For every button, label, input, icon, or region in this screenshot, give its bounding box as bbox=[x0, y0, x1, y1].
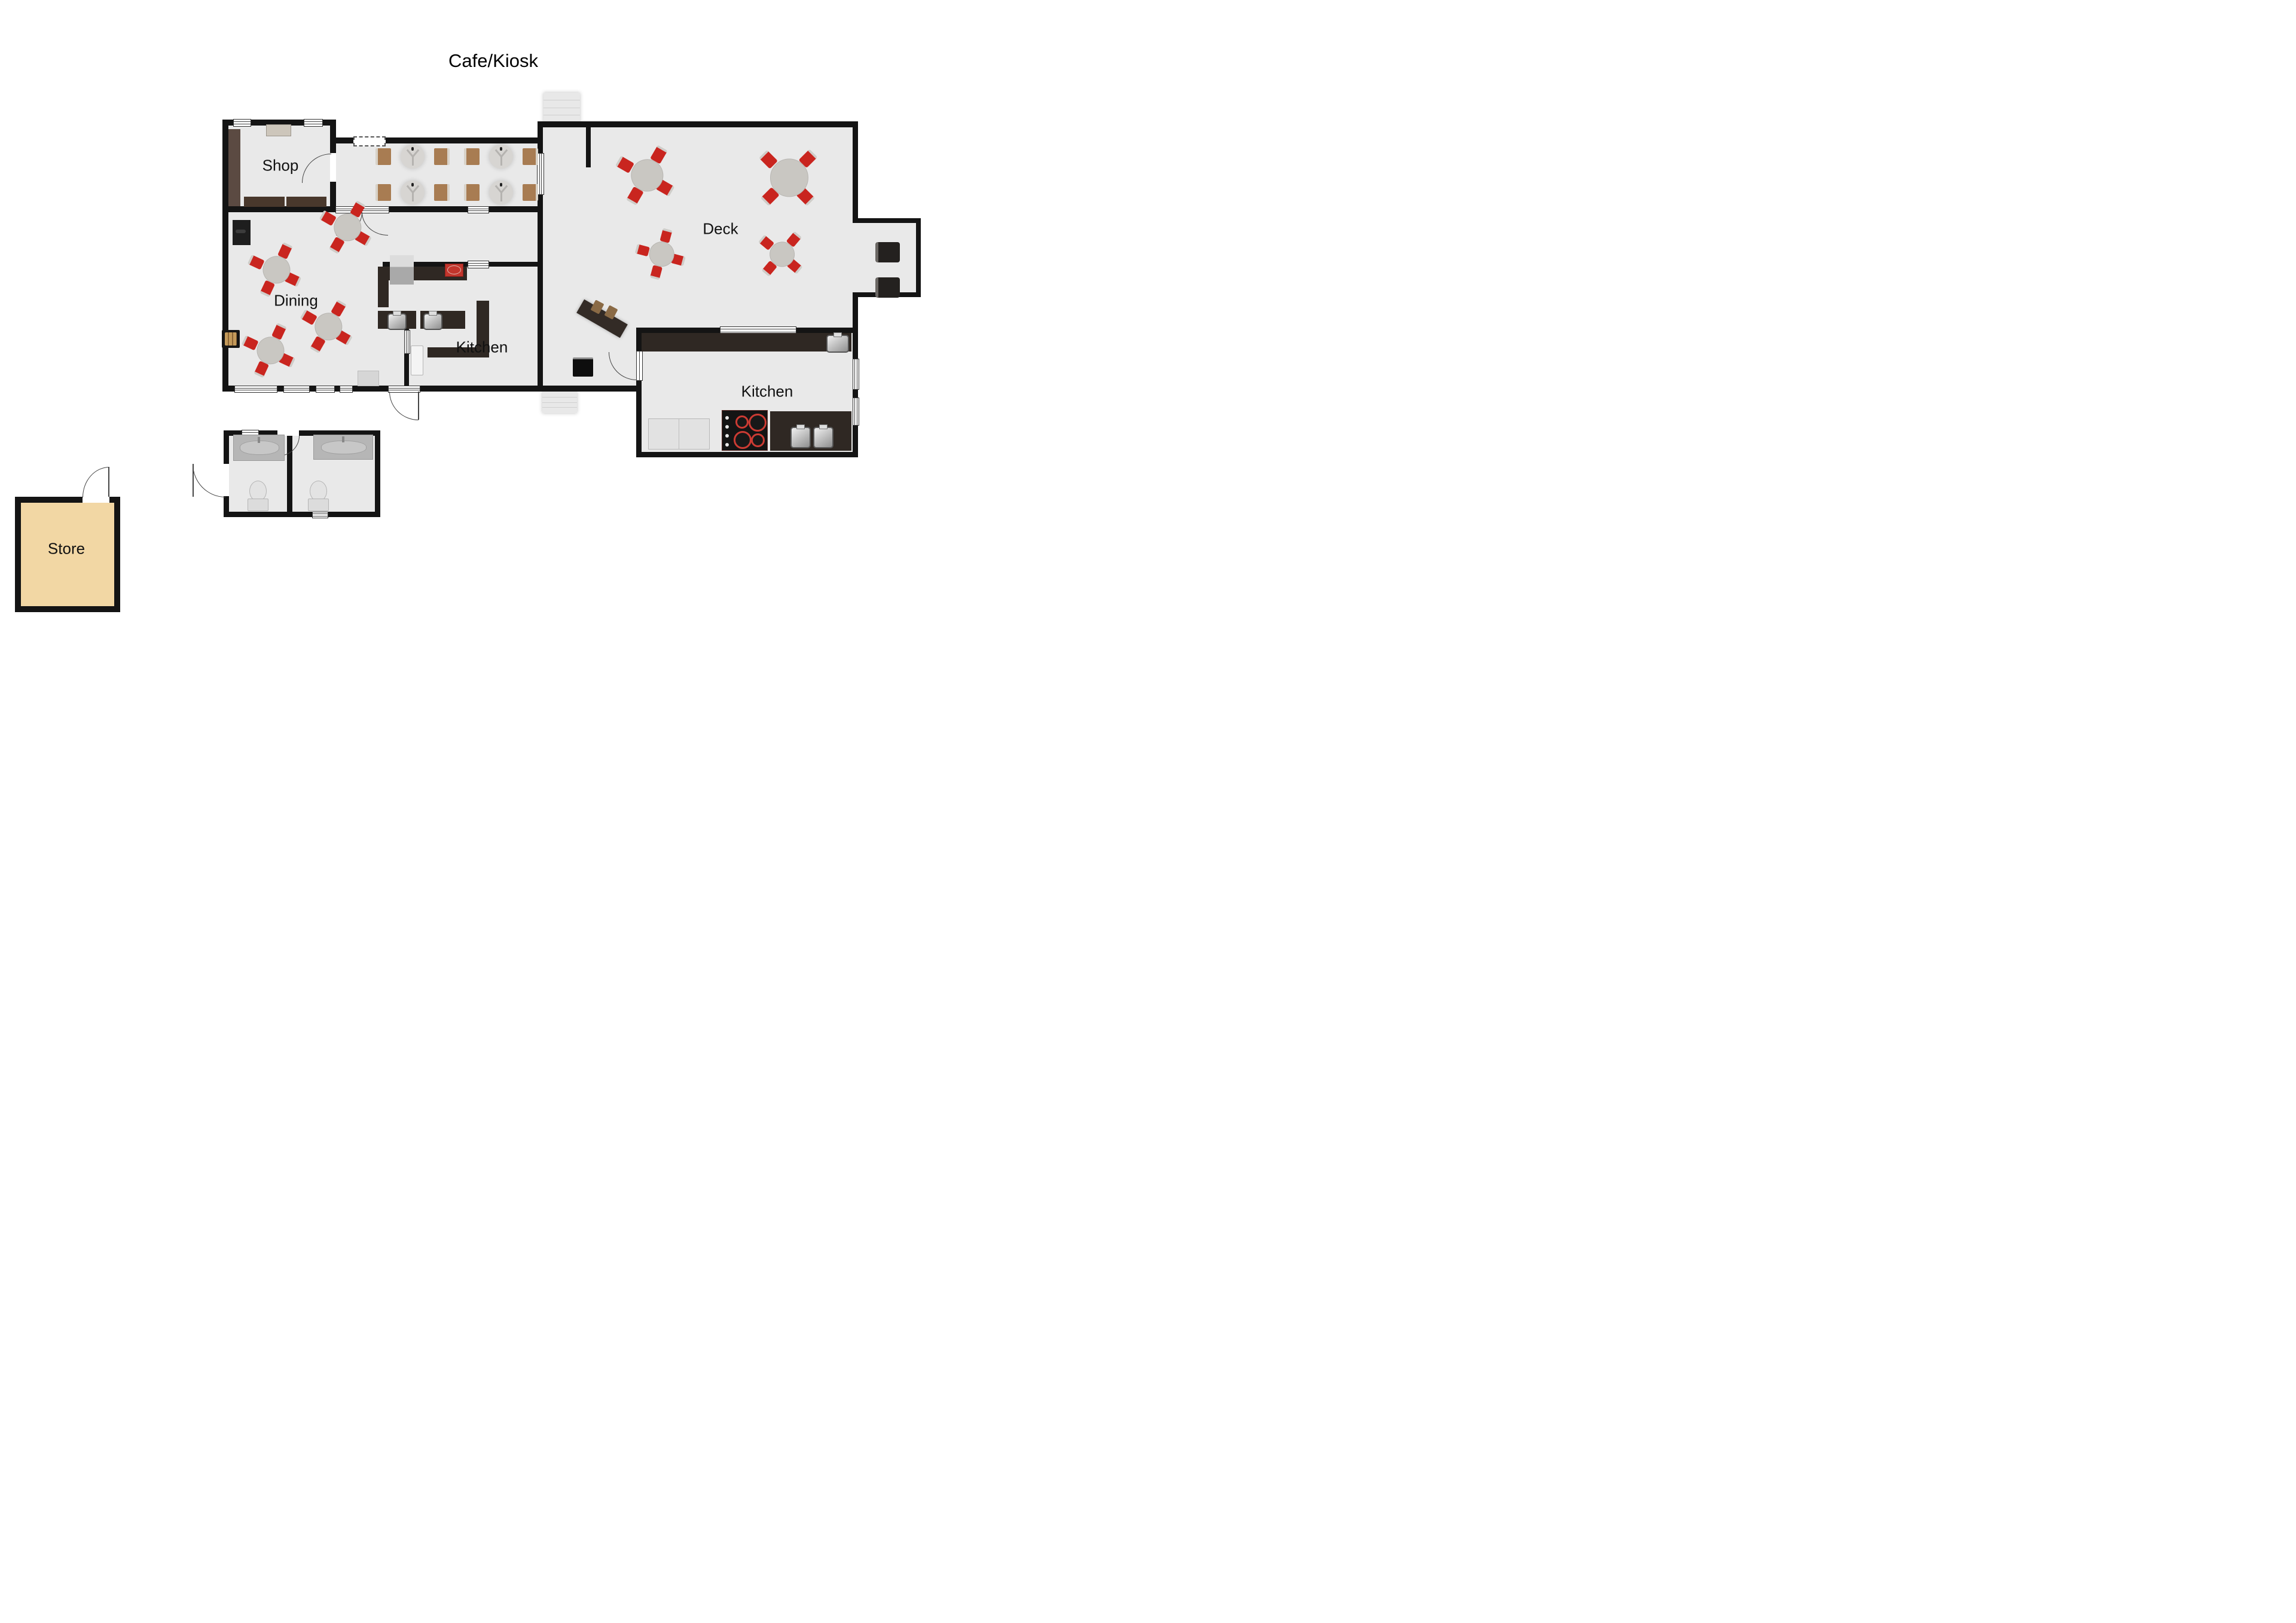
deck-top-wall bbox=[543, 121, 858, 127]
dining-window-2 bbox=[283, 386, 310, 393]
store-label: Store bbox=[48, 540, 85, 558]
deck-interior-stub-wall bbox=[586, 127, 591, 167]
corridor-table-4 bbox=[464, 178, 538, 207]
bathroom-right-wall bbox=[375, 430, 380, 517]
table-leg bbox=[412, 192, 414, 201]
deck-entry-steps-bottom bbox=[542, 392, 577, 413]
table-leg bbox=[500, 192, 502, 201]
shop-counter-right bbox=[286, 197, 326, 207]
kitchen-right-top-counter bbox=[642, 333, 851, 352]
kitchen-right-label: Kitchen bbox=[741, 383, 793, 401]
kitchen-right-door-opening[interactable] bbox=[636, 351, 643, 381]
bar-stool bbox=[523, 148, 538, 165]
alcove-right-wall bbox=[916, 218, 921, 297]
kitchen-door-arc bbox=[389, 392, 419, 420]
table-post bbox=[500, 147, 502, 151]
corridor-table-2 bbox=[464, 142, 538, 171]
bar-stool bbox=[434, 148, 450, 165]
bathroom-left-vanity bbox=[233, 435, 285, 461]
toilet-left-tank bbox=[248, 499, 268, 511]
store-bottom-wall bbox=[15, 606, 120, 612]
cooktop-knob-1 bbox=[725, 416, 729, 420]
kitchen-right-sink-2 bbox=[813, 427, 833, 448]
cooktop bbox=[722, 410, 768, 451]
cooktop-knob-2 bbox=[725, 425, 729, 429]
table-post bbox=[411, 147, 414, 151]
kitchen-fridge bbox=[411, 346, 423, 375]
store-door-arc bbox=[83, 467, 109, 497]
wood-stove-logs bbox=[225, 332, 237, 346]
west-exterior-wall bbox=[222, 120, 228, 392]
plan-title: Cafe/Kiosk bbox=[448, 50, 538, 72]
dining-heater-handle bbox=[236, 230, 246, 233]
store-door-leaf bbox=[108, 467, 109, 497]
shop-window-right bbox=[304, 119, 323, 127]
deck-cube-stool bbox=[573, 357, 593, 377]
deck-label: Deck bbox=[703, 220, 738, 239]
store-door-opening[interactable] bbox=[83, 497, 109, 503]
bathroom-left-basin bbox=[240, 441, 279, 455]
kitchen-sink-1 bbox=[387, 313, 407, 330]
floor-plan-canvas: Cafe/Kiosk Shop Dining Kitchen Kitchen D… bbox=[0, 0, 924, 653]
deck-bottom-left-wall bbox=[543, 386, 642, 392]
kitchen-right-sink-1 bbox=[790, 427, 811, 448]
kitchen-right-sink-top bbox=[826, 335, 849, 353]
bathroom-bottom-wall bbox=[224, 512, 380, 517]
bar-stool bbox=[464, 184, 480, 201]
table-leg bbox=[500, 157, 502, 166]
deck-right-wall-upper bbox=[853, 121, 858, 223]
alcove-top-wall bbox=[853, 218, 921, 223]
chair bbox=[650, 265, 662, 280]
bar-stool bbox=[464, 148, 480, 165]
cooktop-burner-4 bbox=[751, 433, 765, 447]
pantry-window bbox=[404, 330, 410, 354]
bathroom-right-tap bbox=[342, 436, 344, 442]
bar-stool bbox=[434, 184, 450, 201]
store-left-wall bbox=[15, 497, 21, 612]
dining-window-4 bbox=[340, 386, 353, 393]
kitchen-sink-2 bbox=[423, 313, 442, 330]
dining-window-3 bbox=[316, 386, 335, 393]
cooktop-burner-2 bbox=[749, 414, 767, 432]
kitchen-right-left-wall bbox=[636, 328, 642, 457]
kitchen-right-east-window-2 bbox=[853, 398, 859, 426]
serving-wall-window bbox=[468, 261, 489, 268]
shop-window-left bbox=[233, 119, 251, 127]
bathroom-left-door-leaf bbox=[193, 464, 194, 497]
grill-appliance-plate bbox=[447, 265, 461, 274]
shop-counter-left bbox=[244, 197, 285, 207]
cooktop-knob-3 bbox=[725, 434, 729, 438]
bar-stool bbox=[375, 148, 391, 165]
bar-stool bbox=[375, 184, 391, 201]
bathroom-right-vanity bbox=[313, 435, 373, 460]
table-post bbox=[500, 183, 502, 187]
cooktop-burner-1 bbox=[735, 415, 749, 429]
chair bbox=[635, 244, 650, 256]
store-right-wall bbox=[114, 497, 120, 612]
table-leg bbox=[412, 157, 414, 166]
alcove-armchair-2 bbox=[875, 277, 900, 298]
kitchen-left-counter bbox=[378, 267, 389, 307]
cooktop-knob-4 bbox=[725, 443, 729, 447]
bathroom-left-tap bbox=[258, 437, 260, 443]
bathroom-bottom-window bbox=[312, 512, 328, 518]
kitchen-center-label: Kitchen bbox=[456, 338, 508, 357]
toilet-right-tank bbox=[308, 499, 329, 511]
cooktop-burner-3 bbox=[734, 431, 752, 449]
corridor-table-3 bbox=[375, 178, 450, 207]
alcove-armchair-1 bbox=[875, 242, 900, 262]
table-post bbox=[411, 183, 414, 187]
shop-label: Shop bbox=[262, 157, 299, 175]
dining-window-1 bbox=[234, 386, 277, 393]
dining-cabinet bbox=[358, 371, 379, 386]
corridor-table-1 bbox=[375, 142, 450, 171]
chest-freezer bbox=[648, 418, 710, 450]
chair bbox=[660, 228, 672, 243]
bathroom-left-door-arc bbox=[193, 464, 225, 497]
shop-wall-shelf bbox=[228, 129, 240, 206]
kitchen-right-east-window-1 bbox=[853, 359, 859, 390]
kitchen-right-bottom-counter bbox=[770, 411, 851, 451]
deck-entry-steps-top bbox=[544, 93, 580, 123]
round-table bbox=[646, 239, 677, 270]
shop-display-cabinet bbox=[266, 124, 291, 136]
bar-stool bbox=[523, 184, 538, 201]
kitchen-right-bottom-wall bbox=[636, 452, 858, 457]
corridor-bottom-window bbox=[468, 206, 489, 213]
serving-hatch bbox=[390, 255, 414, 285]
